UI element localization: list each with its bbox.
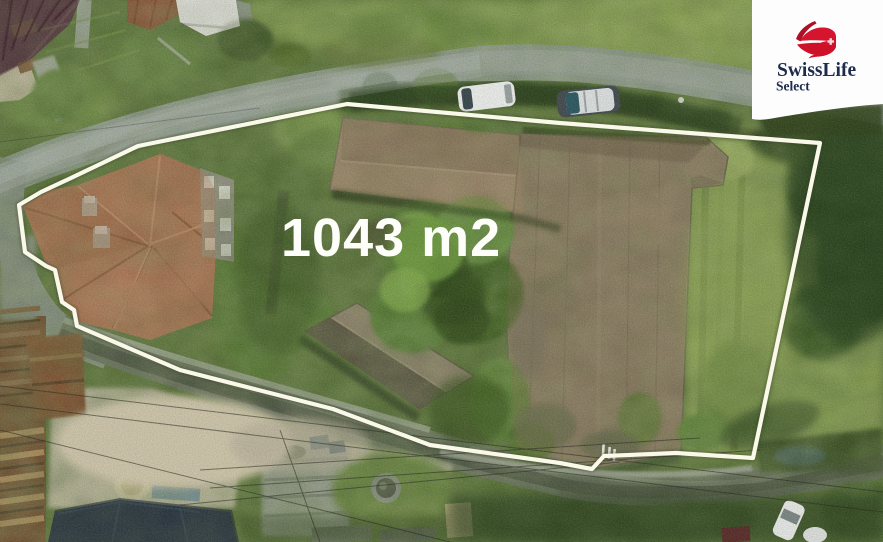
svg-text:1043 m2: 1043 m2 bbox=[281, 208, 501, 268]
svg-text:Select: Select bbox=[776, 79, 810, 94]
